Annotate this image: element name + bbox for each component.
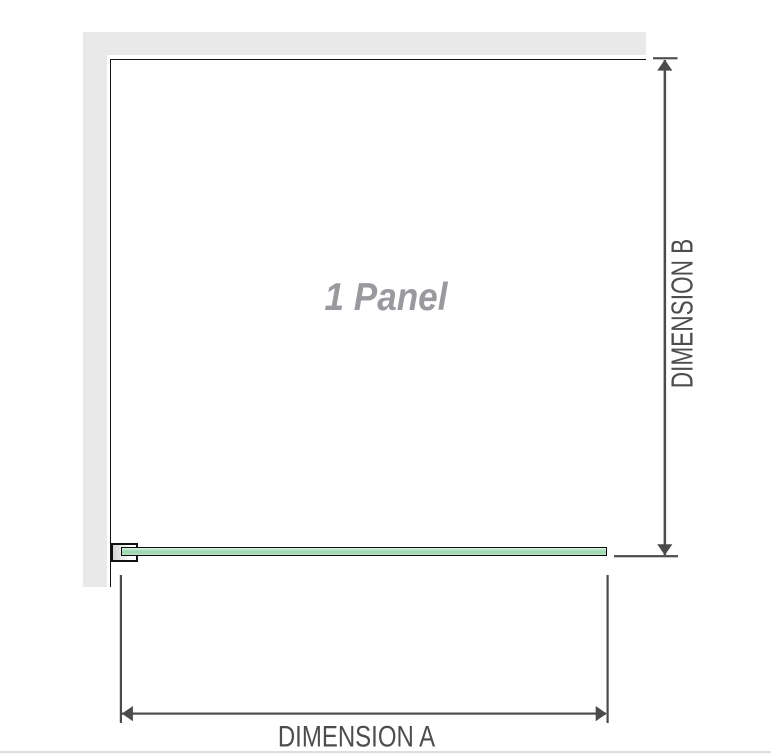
- svg-text:DIMENSION B: DIMENSION B: [664, 239, 699, 389]
- svg-text:DIMENSION A: DIMENSION A: [278, 719, 436, 753]
